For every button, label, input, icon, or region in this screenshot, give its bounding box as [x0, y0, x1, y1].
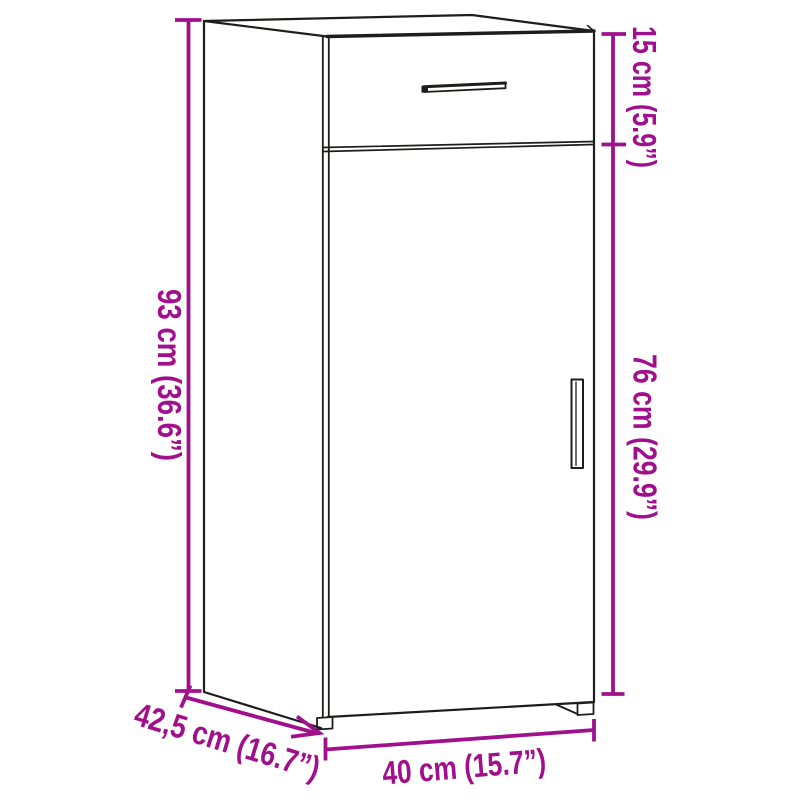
cabinet-dimension-drawing: 93 cm (36.6”) 15 cm (5.9”) 76 cm (29.9”)… [0, 0, 800, 800]
door-top-edge [323, 145, 594, 152]
cabinet-top-front-edge [327, 31, 594, 37]
width-dimension-label: 40 cm (15.7”) [381, 742, 547, 792]
door-height-dimension-label: 76 cm (29.9”) [627, 354, 664, 520]
drawer-height-dimension-label: 15 cm (5.9”) [626, 26, 663, 168]
cabinet-bottom-front-edge [328, 702, 594, 717]
drawer-handle-top-edge [424, 83, 506, 87]
dimension-diagram: 93 cm (36.6”) 15 cm (5.9”) 76 cm (29.9”)… [0, 0, 800, 800]
right-side-bottom-sliver [556, 705, 578, 715]
drawer-height-dimension-line [602, 34, 627, 694]
height-dimension-label: 93 cm (36.6”) [151, 289, 188, 461]
drawer-handle-left-cap [422, 86, 429, 93]
front-right-foot [578, 703, 594, 716]
door-handle [572, 380, 584, 469]
drawer-bottom-edge [323, 142, 594, 148]
cabinet-left-side-panel [204, 21, 321, 728]
